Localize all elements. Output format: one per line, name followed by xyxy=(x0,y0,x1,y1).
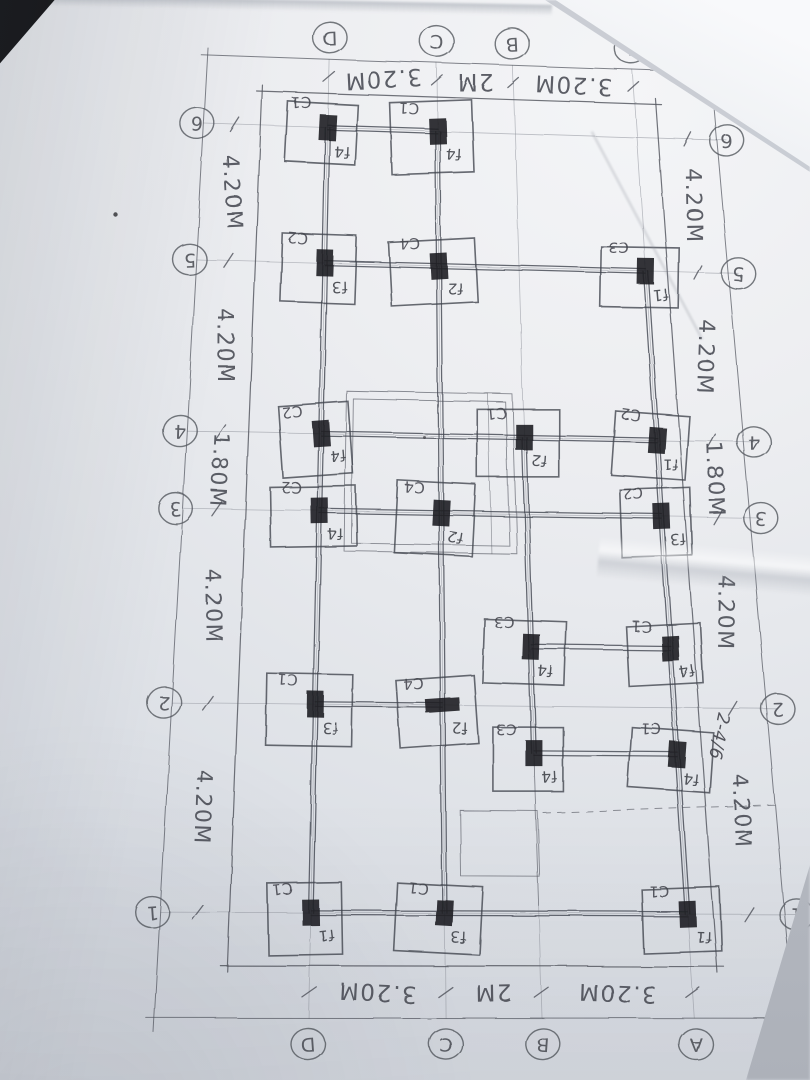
dim-label-right: 4.20M xyxy=(691,319,719,395)
column-mark-label: C2 xyxy=(286,228,309,248)
footing-mark-label: f4 xyxy=(327,524,343,542)
grid-line-col-D xyxy=(309,59,330,1018)
column-mark-label: C3 xyxy=(493,612,515,631)
column-mark xyxy=(302,900,319,926)
grid-bubble-right-3-label: 3 xyxy=(754,507,767,530)
footing-mark-label: f4 xyxy=(333,142,350,161)
footing-mark-label: f4 xyxy=(445,144,462,163)
grid-bubble-top-D-label: D xyxy=(322,26,337,48)
grid-line-row-1 xyxy=(160,912,796,914)
column-mark-label: C1 xyxy=(271,879,294,899)
grid-bubble-bottom-A-label: A xyxy=(689,1033,702,1055)
grid-bubble-right-6-label: 6 xyxy=(721,129,733,151)
dim-label-left: 4.20M xyxy=(212,308,237,383)
footing-A2b: C1f4 xyxy=(628,718,715,793)
footing-mark-label: f2 xyxy=(447,279,464,297)
floor-plan-drawing: C1f4C1f4C2f3C4f2C3f1C2f4C1f2C2f1C2f4C4f2… xyxy=(0,0,810,1080)
grid-bubble-left-6-label: 6 xyxy=(191,112,204,135)
photo-of-drawing: C1f4C1f4C2f3C4f2C3f1C2f4C1f2C2f1C2f4C4f2… xyxy=(0,0,810,1080)
footing-mark-label: f1 xyxy=(662,455,678,473)
beam-row-1 xyxy=(311,915,688,916)
dim-band-line-left xyxy=(154,48,209,1032)
column-mark xyxy=(647,426,666,453)
room-outline xyxy=(351,399,509,546)
column-mark xyxy=(637,258,654,284)
footing-mark-label: f4 xyxy=(677,660,696,680)
column-mark-label: C4 xyxy=(402,674,424,693)
footing-D4: C2f4 xyxy=(278,398,353,478)
footing-mark-label: f2 xyxy=(445,526,464,546)
column-mark-label: C1 xyxy=(290,93,311,111)
column-mark-label: C2 xyxy=(622,484,644,503)
footing-mark-label: f4 xyxy=(329,446,347,465)
column-mark-label: C1 xyxy=(648,882,669,900)
footing-mark-label: f4 xyxy=(681,769,699,789)
grid-bubble-bottom-B-label: B xyxy=(536,1033,551,1056)
grid-bubble-left-1-label: 1 xyxy=(145,901,159,924)
footing-mark-label: f4 xyxy=(536,660,554,679)
column-mark xyxy=(516,424,533,450)
column-mark-label: C4 xyxy=(399,234,421,253)
beam-row-1 xyxy=(311,910,688,911)
grid-bubble-right-4-label: 4 xyxy=(748,431,760,453)
footing-mark-label: f3 xyxy=(331,277,348,295)
dim-label-right: 4.20M xyxy=(726,773,755,850)
grid-line-row-4 xyxy=(187,431,754,442)
footing-B2.5: C3f4 xyxy=(482,611,566,686)
footing-mark-label: f3 xyxy=(322,718,339,736)
column-mark xyxy=(432,499,450,526)
footing-D2: C1f3 xyxy=(266,670,353,747)
column-mark-label: C2 xyxy=(280,478,301,496)
dim-label-bottom: 2M xyxy=(474,979,512,1006)
room-outline xyxy=(460,810,539,876)
annotation-scribble: 2-4/6 xyxy=(704,711,733,761)
column-mark xyxy=(430,252,448,279)
column-mark xyxy=(429,118,447,145)
column-mark-label: C2 xyxy=(280,401,303,421)
dim-label-left: 1.80M xyxy=(204,432,233,509)
grid-line-col-C xyxy=(437,63,446,1018)
column-mark xyxy=(316,250,334,277)
column-mark-label: C1 xyxy=(406,877,429,897)
dim-label-top: 3.20M xyxy=(343,63,423,93)
beam-row-2.5 xyxy=(531,644,671,646)
dim-label-bottom: 3.20M xyxy=(577,978,656,1007)
column-mark-label: C1 xyxy=(485,403,508,423)
grid-bubble-right-2-label: 2 xyxy=(772,698,785,720)
column-mark-label: C3 xyxy=(495,720,516,738)
grid-bubble-left-3-label: 3 xyxy=(169,497,182,520)
grid-bubble-left-5-label: 5 xyxy=(183,248,196,270)
grid-line-row-3 xyxy=(183,508,761,518)
column-mark xyxy=(653,503,671,530)
grid-bubble-bottom-D-label: D xyxy=(300,1033,316,1056)
dim-label-right: 1.80M xyxy=(701,441,729,517)
column-mark-label: C3 xyxy=(608,238,629,256)
footing-C2: C4f2 xyxy=(396,670,479,748)
grid-bubble-top-B-label: B xyxy=(505,33,519,56)
dim-label-bottom: 3.20M xyxy=(337,977,417,1007)
column-mark xyxy=(312,420,331,447)
footing-mark-label: f1 xyxy=(695,927,712,946)
column-mark-label: C1 xyxy=(630,616,652,635)
beam-col-B xyxy=(527,437,537,753)
column-mark xyxy=(425,697,460,713)
footing-C6: C1f4 xyxy=(389,96,474,175)
column-mark-label: C4 xyxy=(403,478,425,497)
beam-row-2 xyxy=(315,706,442,707)
dim-label-top: 2M xyxy=(457,68,494,94)
beam-row-2b xyxy=(534,751,677,752)
footing-D3: C2f4 xyxy=(270,477,357,548)
column-mark xyxy=(668,741,687,768)
grid-line-row-6 xyxy=(204,124,727,141)
column-mark xyxy=(307,691,324,717)
column-mark-label: C1 xyxy=(277,670,299,689)
beam-row-2b xyxy=(534,755,677,756)
footing-D1: C1f1 xyxy=(267,878,342,955)
plan-border-bottom xyxy=(220,966,724,967)
column-mark-label: C1 xyxy=(640,719,661,737)
beam-col-A xyxy=(648,271,690,914)
grid-bubble-right-5-label: 5 xyxy=(732,262,746,285)
beam-col-A xyxy=(643,272,685,915)
column-mark xyxy=(679,901,697,928)
footing-mark-label: f4 xyxy=(540,767,557,786)
column-mark xyxy=(435,900,453,927)
grid-bubble-top-C-label: C xyxy=(430,30,444,52)
column-mark xyxy=(522,633,540,660)
dim-label-left: 4.20M xyxy=(189,769,217,845)
dim-label-left: 4.20M xyxy=(217,154,246,231)
dim-label-top: 3.20M xyxy=(534,70,614,100)
column-mark xyxy=(311,497,328,523)
footing-mark-label: f3 xyxy=(450,928,467,947)
pencil-speck xyxy=(113,212,117,216)
beam-row-2 xyxy=(315,702,442,703)
grid-bubble-left-2-label: 2 xyxy=(158,691,170,713)
pencil-speck xyxy=(423,436,426,439)
footing-mark-label: f1 xyxy=(651,285,669,304)
column-mark xyxy=(661,635,679,662)
dim-label-right: 4.20M xyxy=(680,168,706,244)
beam-row-5 xyxy=(325,261,646,269)
grid-line-row-2 xyxy=(172,703,778,709)
dim-label-left: 4.20M xyxy=(199,568,225,644)
grid-line-row-5 xyxy=(196,259,738,273)
footing-mark-label: f2 xyxy=(451,718,468,736)
footing-mark-label: f1 xyxy=(317,925,335,945)
column-mark-label: C2 xyxy=(619,404,642,425)
column-mark xyxy=(318,114,336,141)
column-mark-label: C1 xyxy=(398,99,420,118)
grid-bubble-bottom-C-label: C xyxy=(439,1033,452,1055)
beam-row-5 xyxy=(325,265,646,273)
grid-bubble-left-4-label: 4 xyxy=(173,419,186,441)
beam-row-2.5 xyxy=(531,649,671,651)
footing-mark-label: f2 xyxy=(530,451,548,470)
column-mark xyxy=(525,740,542,766)
